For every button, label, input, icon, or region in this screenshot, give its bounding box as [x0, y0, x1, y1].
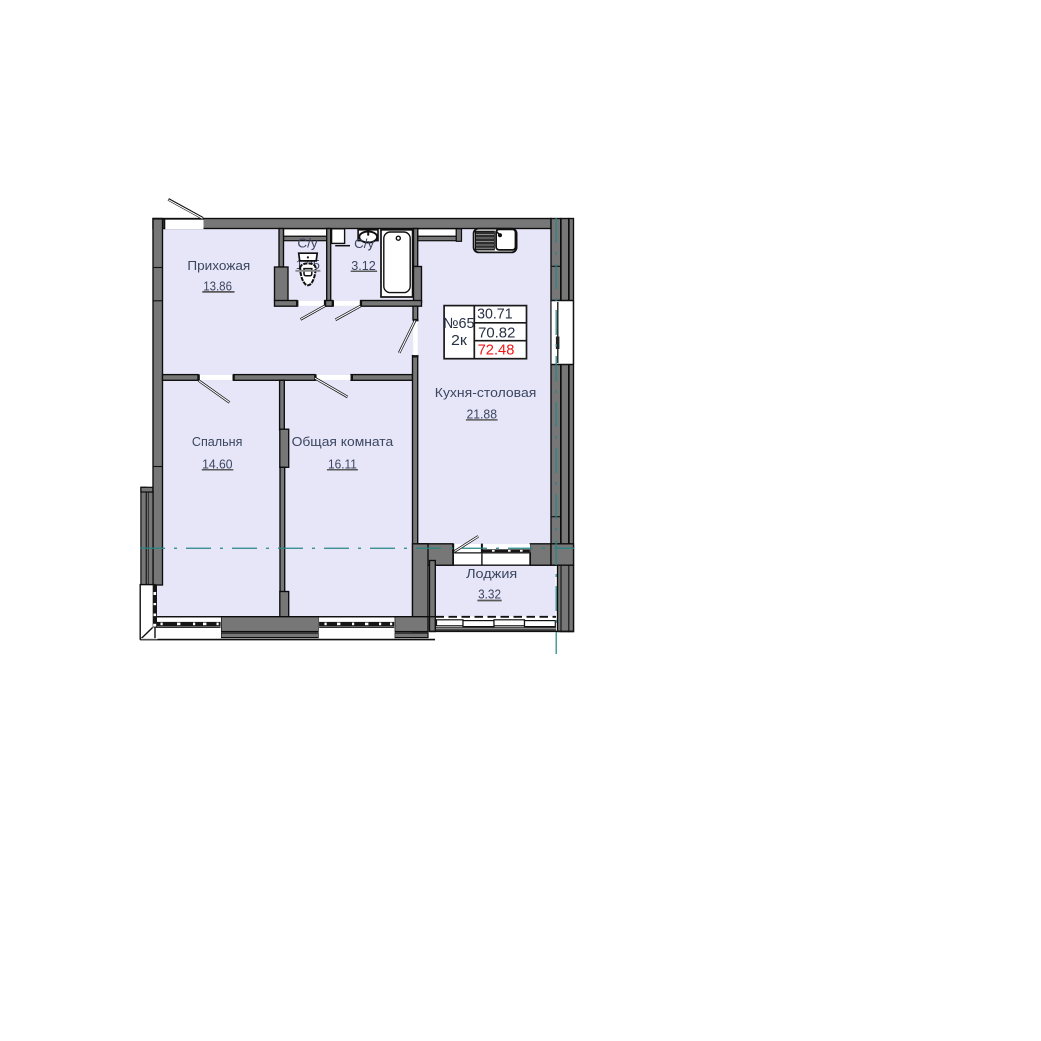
svg-text:Общая комната: Общая комната: [292, 434, 394, 449]
svg-text:С/у: С/у: [354, 236, 374, 251]
svg-text:30.71: 30.71: [477, 306, 512, 322]
svg-text:Спальня: Спальня: [192, 434, 243, 449]
svg-text:2к: 2к: [451, 333, 468, 349]
svg-text:Лоджия: Лоджия: [466, 566, 517, 581]
svg-text:72.48: 72.48: [478, 343, 515, 359]
svg-text:С/у: С/у: [297, 236, 318, 251]
svg-text:№65: №65: [443, 316, 474, 332]
svg-text:Кухня-столовая: Кухня-столовая: [435, 385, 537, 400]
svg-text:3.32: 3.32: [478, 587, 501, 602]
svg-text:70.82: 70.82: [478, 325, 515, 341]
svg-text:Прихожая: Прихожая: [187, 258, 250, 273]
